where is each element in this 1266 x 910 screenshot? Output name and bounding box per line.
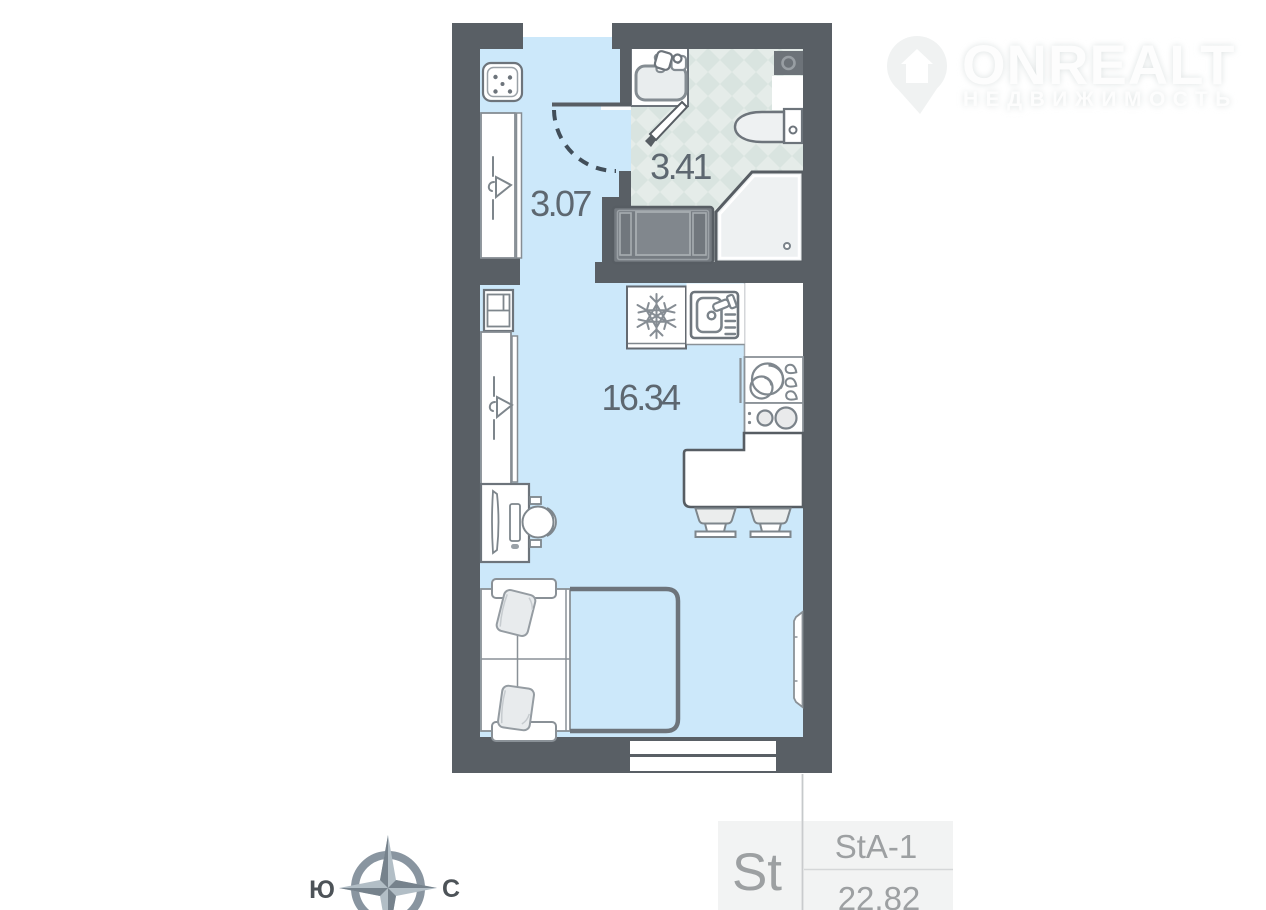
svg-text:St: St xyxy=(732,843,782,902)
svg-text:НЕДВИЖИМОСТЬ: НЕДВИЖИМОСТЬ xyxy=(963,88,1238,111)
svg-text:Ю: Ю xyxy=(309,876,335,904)
svg-text:3.07: 3.07 xyxy=(530,183,591,224)
svg-text:22.82: 22.82 xyxy=(838,880,921,910)
svg-text:3.41: 3.41 xyxy=(650,146,711,187)
svg-text:16.34: 16.34 xyxy=(601,377,680,418)
svg-text:С: С xyxy=(442,875,460,903)
svg-text:ONREALT: ONREALT xyxy=(962,33,1236,96)
svg-text:StA-1: StA-1 xyxy=(835,828,918,865)
